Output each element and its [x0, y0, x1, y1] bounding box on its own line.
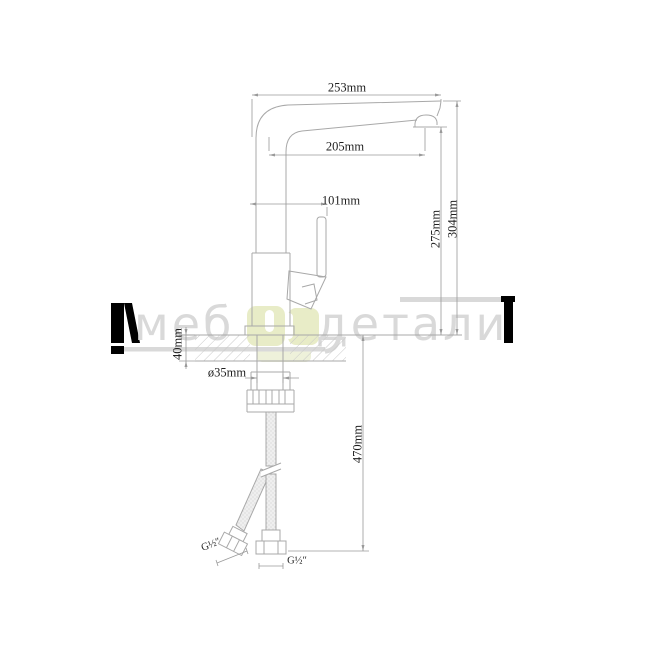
- supply-hoses: [218, 412, 286, 556]
- hose-fitting-right: [256, 530, 286, 554]
- base-flange: [245, 326, 294, 335]
- countertop-section: [195, 335, 346, 361]
- dim-label-g12-right: G½″: [287, 556, 307, 567]
- handle-lever: [317, 217, 326, 277]
- dim-label-304mm: 304mm: [446, 200, 461, 238]
- dim-label-101mm: 101mm: [322, 194, 360, 209]
- dim-label-35mm: ø35mm: [208, 366, 246, 381]
- dim-label-275mm: 275mm: [429, 210, 444, 248]
- faucet-drawing: [0, 0, 650, 650]
- dimension-lines: [179, 95, 461, 569]
- dimension-arrows: [185, 94, 459, 552]
- dim-label-205mm: 205mm: [326, 140, 364, 155]
- dim-label-40mm: 40mm: [171, 328, 186, 360]
- aerator: [415, 115, 437, 127]
- dim-label-470mm: 470mm: [351, 425, 366, 463]
- technical-drawing-page: меб детали: [0, 0, 650, 650]
- dim-label-253mm: 253mm: [328, 81, 366, 96]
- mounting-nut: [247, 390, 294, 412]
- faucet-body: [180, 101, 462, 556]
